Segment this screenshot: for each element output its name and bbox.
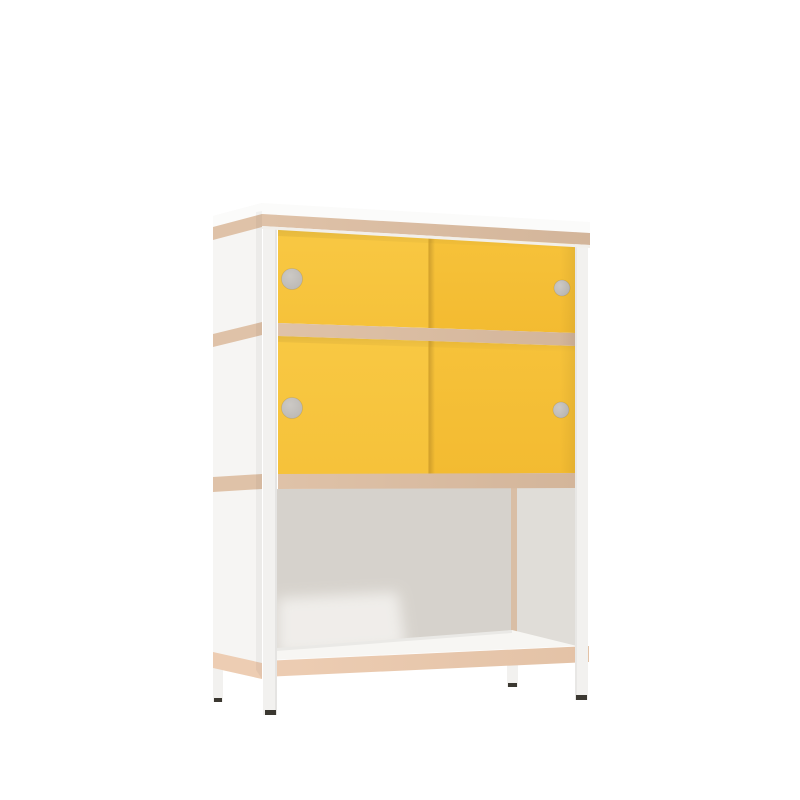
front-right-leg	[575, 222, 588, 700]
sliding-door-row-lower	[278, 336, 575, 474]
sliding-door-upper-right	[429, 236, 575, 333]
interior-corner-edge	[511, 487, 517, 632]
front-right-leg-edge-shade	[575, 222, 577, 700]
back-right-leg-foot	[508, 683, 517, 687]
upper-door-seam-shadow	[429, 236, 435, 329]
front-left-leg-edge-shade	[275, 204, 277, 715]
render-stage: Product render of a sideboard cabinet wi…	[0, 0, 800, 800]
cabinet-product-image	[0, 0, 800, 800]
interior-right-panel	[517, 487, 576, 646]
finger-hole-handle-lower-left	[282, 398, 303, 419]
finger-hole-handle-upper-left	[282, 269, 303, 290]
side-panel-corner-shade	[256, 211, 262, 679]
front-left-leg	[263, 204, 277, 715]
door-right-edge-shade	[560, 242, 575, 473]
front-plywood-band-lower	[278, 473, 575, 489]
sliding-door-row-upper	[278, 229, 575, 333]
front-left-leg-foot	[265, 710, 276, 715]
open-compartment	[266, 487, 577, 660]
front-right-leg-foot	[576, 695, 587, 700]
lower-door-seam-shadow	[429, 341, 435, 474]
side-plywood-band-lower	[213, 474, 262, 492]
back-left-leg-foot	[214, 698, 222, 702]
side-panel-face	[213, 203, 262, 679]
front-left-leg-post	[263, 204, 277, 715]
side-panel-left	[213, 203, 262, 679]
